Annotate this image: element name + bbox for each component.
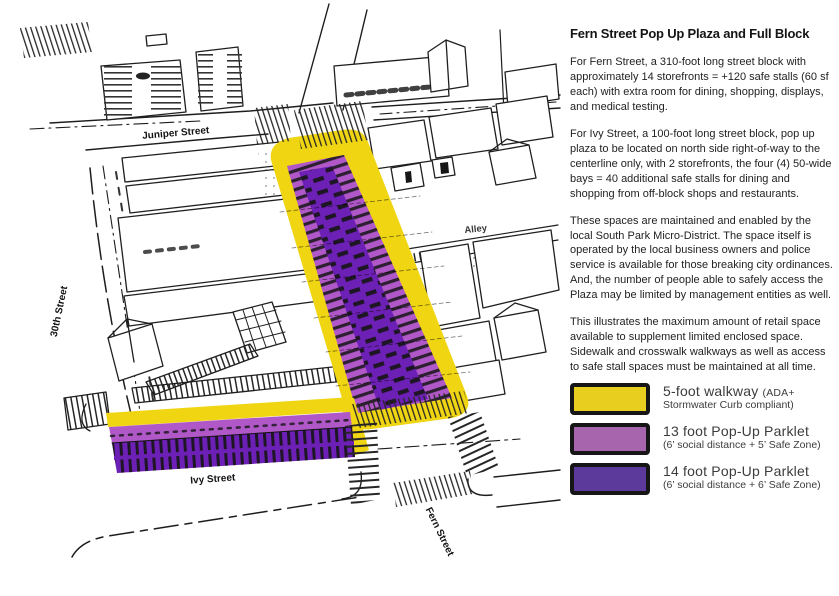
legend-parklet-13-sublabel: (6’ social distance + 5’ Safe Zone) — [663, 439, 821, 452]
page-title: Fern Street Pop Up Plaza and Full Block — [570, 26, 834, 41]
legend: 5-foot walkway (ADA+ Stormwater Curb com… — [570, 383, 836, 503]
pop-up-plaza-illustration: Juniper Street Alley 30th Street Ivy Str… — [0, 0, 839, 596]
description-panel: Fern Street Pop Up Plaza and Full Block … — [570, 26, 834, 387]
ivy-street-plaza — [106, 397, 369, 473]
fern-street-label: Fern Street — [423, 506, 456, 559]
legend-parklet-13-label: 13 foot Pop-Up Parklet — [663, 424, 821, 439]
legend-parklet-14-label: 14 foot Pop-Up Parklet — [663, 464, 821, 479]
legend-walkway-sublabel: Stormwater Curb compliant) — [663, 399, 795, 412]
thirtieth-street-label: 30th Street — [49, 284, 71, 337]
paragraph-ivy-street: For Ivy Street, a 100-foot long street b… — [570, 127, 834, 202]
legend-item-parklet-13: 13 foot Pop-Up Parklet (6’ social distan… — [570, 423, 836, 455]
crosswalk-top-left — [20, 22, 92, 58]
site-plan-map: Juniper Street Alley 30th Street Ivy Str… — [0, 0, 565, 596]
legend-walkway-label: 5-foot walkway — [663, 383, 758, 399]
alley-label: Alley — [464, 223, 488, 236]
paragraph-fern-street: For Fern Street, a 310-foot long street … — [570, 55, 834, 115]
ivy-street-label: Ivy Street — [190, 472, 236, 486]
paragraph-management: These spaces are maintained and enabled … — [570, 214, 834, 304]
legend-walkway-tail: (ADA+ — [763, 387, 795, 399]
legend-item-walkway: 5-foot walkway (ADA+ Stormwater Curb com… — [570, 383, 836, 415]
paragraph-retail-space: This illustrates the maximum amount of r… — [570, 315, 834, 375]
legend-parklet-14-sublabel: (6’ social distance + 6’ Safe Zone) — [663, 479, 821, 492]
walkway-swatch — [570, 383, 650, 415]
parklet-13-swatch — [570, 423, 650, 455]
map-container: Juniper Street Alley 30th Street Ivy Str… — [0, 0, 565, 596]
parklet-14-swatch — [570, 463, 650, 495]
legend-item-parklet-14: 14 foot Pop-Up Parklet (6’ social distan… — [570, 463, 836, 495]
